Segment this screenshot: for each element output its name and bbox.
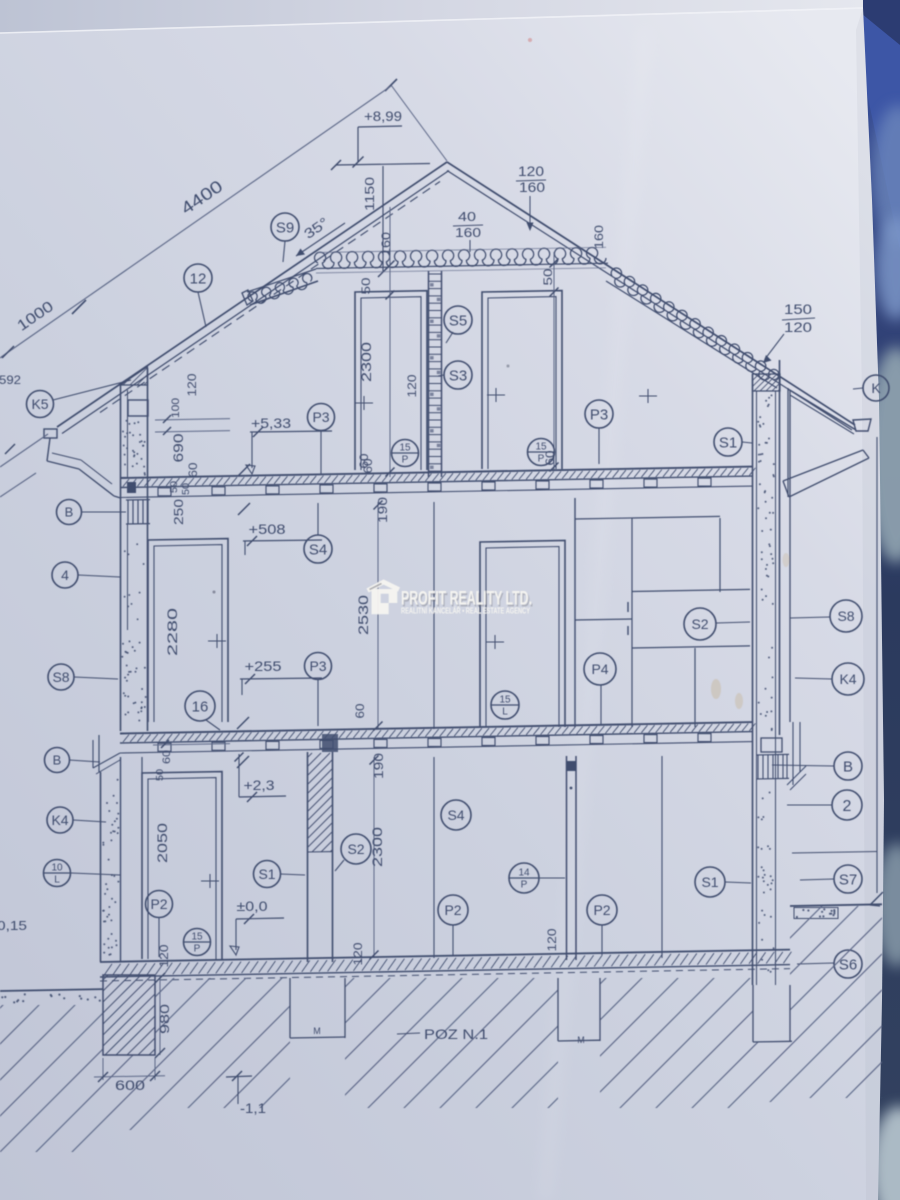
svg-text:S4: S4 [309, 541, 327, 558]
svg-text:P: P [402, 455, 409, 466]
svg-text:592: 592 [0, 373, 21, 387]
svg-text:120: 120 [784, 320, 812, 335]
svg-text:150: 150 [784, 302, 812, 317]
svg-text:P: P [538, 454, 545, 465]
svg-text:P: P [521, 880, 528, 891]
svg-text:B: B [53, 753, 62, 768]
svg-text:1150: 1150 [362, 177, 377, 211]
svg-text:POZ N.1: POZ N.1 [424, 1026, 488, 1042]
svg-text:2530: 2530 [356, 595, 371, 635]
svg-text:+5,33: +5,33 [251, 415, 291, 431]
svg-text:160: 160 [379, 232, 393, 256]
svg-text:K5: K5 [31, 396, 48, 412]
svg-text:120: 120 [545, 928, 559, 951]
svg-text:60: 60 [161, 750, 173, 764]
svg-text:12: 12 [190, 270, 207, 287]
svg-text:S1: S1 [719, 434, 737, 451]
svg-text:15: 15 [535, 442, 547, 453]
svg-text:690: 690 [171, 434, 186, 463]
svg-text:S4: S4 [447, 807, 464, 823]
svg-text:15: 15 [191, 932, 203, 943]
svg-text:P2: P2 [444, 902, 461, 918]
svg-text:980: 980 [157, 1004, 172, 1034]
svg-text:14: 14 [518, 868, 530, 879]
svg-text:2300: 2300 [359, 342, 374, 382]
svg-text:P3: P3 [309, 658, 326, 674]
svg-text:120: 120 [185, 373, 199, 396]
svg-text:P2: P2 [593, 902, 610, 918]
svg-text:S8: S8 [837, 608, 854, 624]
svg-text:S3: S3 [449, 367, 467, 384]
svg-text:+8,99: +8,99 [364, 108, 402, 124]
svg-text:S1: S1 [701, 874, 718, 890]
svg-text:+508: +508 [249, 521, 286, 537]
svg-text:K4: K4 [839, 671, 856, 687]
svg-text:L: L [54, 875, 60, 886]
svg-text:2300: 2300 [370, 827, 385, 867]
svg-text:-1,1: -1,1 [240, 1100, 266, 1116]
svg-text:S2: S2 [691, 616, 708, 632]
svg-text:S8: S8 [52, 669, 69, 685]
svg-text:60: 60 [186, 462, 200, 477]
svg-text:120: 120 [405, 374, 419, 397]
svg-text:M: M [313, 1026, 321, 1036]
svg-text:P4: P4 [591, 661, 608, 677]
svg-text:S9: S9 [276, 219, 294, 236]
svg-text:P2: P2 [150, 896, 167, 912]
svg-text:10: 10 [51, 863, 63, 874]
svg-text:L: L [502, 707, 508, 718]
svg-text:50: 50 [359, 277, 373, 294]
svg-text:+255: +255 [245, 658, 282, 674]
svg-text:P3: P3 [312, 409, 329, 425]
svg-text:600: 600 [115, 1077, 145, 1093]
svg-text:250: 250 [172, 499, 186, 525]
svg-text:15: 15 [499, 695, 511, 706]
svg-text:+2,3: +2,3 [244, 777, 275, 793]
svg-text:160: 160 [519, 180, 545, 195]
svg-text:S2: S2 [347, 841, 364, 857]
svg-text:B: B [843, 758, 853, 775]
svg-text:P: P [194, 944, 201, 955]
svg-text:15: 15 [399, 443, 411, 454]
svg-text:16: 16 [192, 698, 209, 715]
svg-text:120: 120 [518, 164, 544, 179]
svg-text:S7: S7 [839, 871, 857, 888]
svg-text:40: 40 [458, 209, 476, 224]
svg-text:K: K [871, 380, 881, 396]
svg-text:±0,0: ±0,0 [237, 898, 268, 914]
svg-text:P3: P3 [590, 406, 608, 423]
svg-text:2280: 2280 [165, 608, 180, 656]
svg-text:50: 50 [181, 483, 192, 495]
svg-text:190: 190 [372, 753, 386, 779]
svg-text:60: 60 [361, 458, 375, 473]
svg-text:0,15: 0,15 [0, 918, 27, 933]
svg-text:160: 160 [455, 225, 481, 240]
svg-text:M: M [577, 1035, 585, 1045]
svg-text:S5: S5 [449, 312, 467, 329]
svg-text:S1: S1 [258, 866, 275, 882]
svg-text:K4: K4 [51, 812, 68, 828]
svg-text:2050: 2050 [155, 823, 170, 863]
svg-text:100: 100 [170, 398, 182, 418]
svg-text:4: 4 [61, 567, 69, 583]
svg-text:120: 120 [351, 942, 365, 965]
svg-text:2: 2 [843, 798, 852, 815]
svg-text:REALITNÍ KANCELÁŘ • REAL ESTAT: REALITNÍ KANCELÁŘ • REAL ESTATE AGENCY [401, 607, 530, 616]
svg-text:60: 60 [353, 703, 367, 718]
svg-text:50: 50 [541, 268, 555, 285]
svg-text:B: B [65, 505, 74, 520]
svg-text:160: 160 [592, 225, 606, 249]
